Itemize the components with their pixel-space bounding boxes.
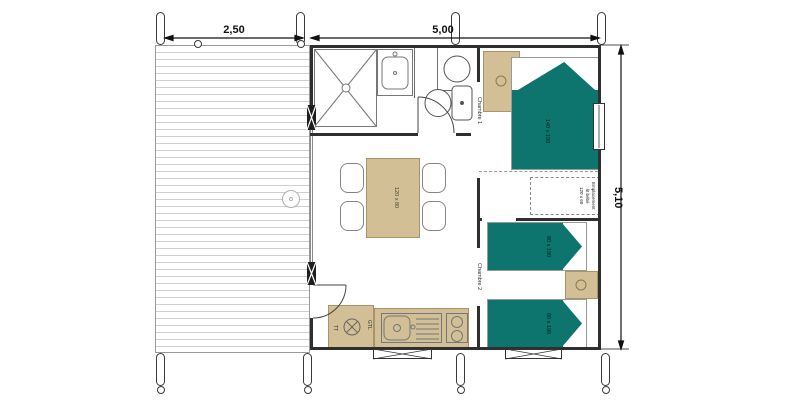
wall-right-upper [598,45,601,103]
bedroom1-dashed-boundary [479,171,598,172]
partition-bedroom2-left [477,218,482,221]
post-bottom-1 [156,353,165,386]
post-bottom-2 [303,353,312,386]
kitchen-sink-unit [381,313,442,343]
double-bed-size-label: 140 x 190 [538,100,550,162]
bay-window-left [310,130,313,262]
window-bottom-kitchen [373,349,432,359]
post-bottom-3 [456,353,465,386]
chair-4 [422,201,446,231]
post-bottom-4 [601,353,610,386]
post-top-1 [156,12,165,45]
table-size-label: 120 x 80 [387,168,399,228]
chair-2 [340,201,364,231]
bedroom2-label: Chambre 2 [471,248,482,306]
baby-bed-label-line1: Emplacement [590,179,596,213]
bathroom-door-arc [418,97,454,133]
single-bed-bottom-size-label: 80 x 190 [540,304,551,344]
post-foot-bottom-3 [457,386,465,394]
washbasin [377,49,413,96]
nightstand [565,271,598,299]
partition-bedroom2-right [516,218,601,221]
dimension-building-depth: 5,10 [610,170,624,226]
dimension-terrace-width: 2,50 [194,24,274,36]
wall-left-lower [310,318,313,347]
chair-1 [340,163,364,193]
deck-light-dot [289,197,293,201]
double-bed-duvet [512,90,599,169]
wall-right-lower [598,150,601,347]
water-heater-label: CE [449,64,466,74]
post-foot-bottom-1 [157,386,165,394]
single-bed-top-size-label: 80 x 190 [540,227,551,267]
niche-line-vertical [437,48,438,90]
post-foot-bottom-2 [304,386,312,394]
single-bed-top-duvet [488,223,563,270]
dimension-building-width: 5,00 [403,24,483,36]
partition-bathroom-left [310,133,418,136]
post-top-4 [597,12,606,45]
baby-bed-label: Emplacement lit bébé 120 x 60 [534,179,596,213]
window-bottom-bedroom2 [505,349,562,359]
gtl-label: GTL [363,314,372,336]
post-foot-bottom-4 [602,386,610,394]
tt-label: TT [330,320,338,336]
shower-tray [314,49,377,127]
single-bed-bottom-duvet [488,300,563,347]
baby-bed-label-line3: 120 x 60 [578,179,584,213]
wall-left-upper [310,45,313,105]
kitchen-hob [446,313,468,343]
wall-left-jamb-upper [307,105,316,130]
post-foot-top-1 [194,40,202,48]
wall-top [310,45,601,48]
basin-partition-line [414,48,415,98]
bedroom1-label: Chambre 1 [471,82,482,140]
floor-plan: 140 x 190 Emplacement lit bébé 120 x 60 … [0,0,800,400]
chair-3 [422,163,446,193]
toilet-icon [425,86,472,120]
wall-left-jamb-lower [307,262,316,285]
post-foot-top-2 [297,40,305,48]
window-right-wall [593,103,605,150]
